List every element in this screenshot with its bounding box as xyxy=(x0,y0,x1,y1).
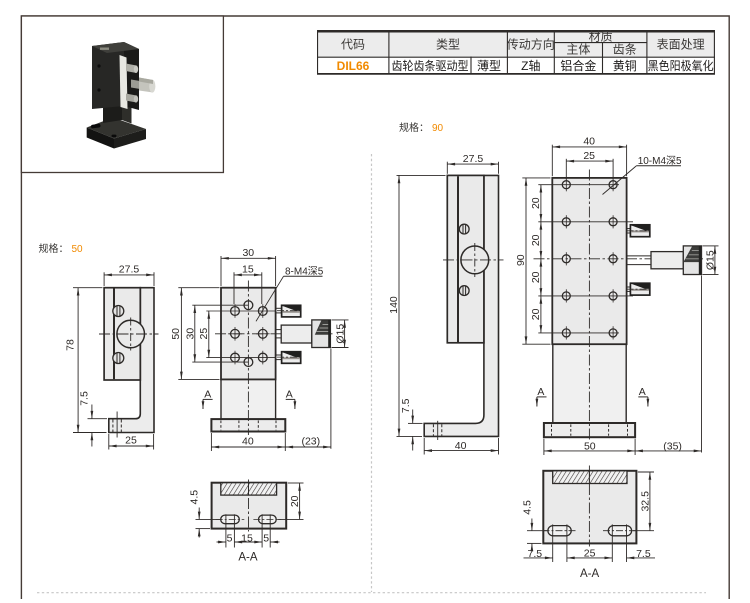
svg-text:25: 25 xyxy=(125,435,137,447)
svg-text:齿轮齿条驱动型: 齿轮齿条驱动型 xyxy=(392,59,469,73)
svg-text:5: 5 xyxy=(263,532,269,544)
svg-text:20: 20 xyxy=(289,495,301,507)
svg-text:A-A: A-A xyxy=(238,552,258,564)
svg-text:A: A xyxy=(639,386,646,398)
svg-text:材质: 材质 xyxy=(589,30,613,44)
svg-text:黄铜: 黄铜 xyxy=(613,58,637,73)
svg-text:Ø15: Ø15 xyxy=(334,324,346,344)
svg-text:4.5: 4.5 xyxy=(521,500,533,515)
svg-text:10-M4深5: 10-M4深5 xyxy=(638,155,682,167)
svg-text:类型: 类型 xyxy=(436,38,460,52)
svg-text:7.5: 7.5 xyxy=(79,391,91,406)
svg-text:90: 90 xyxy=(515,254,527,266)
svg-text:代码: 代码 xyxy=(341,38,365,52)
svg-text:25: 25 xyxy=(584,548,596,560)
svg-text:(35): (35) xyxy=(663,440,682,452)
svg-text:20: 20 xyxy=(530,271,542,283)
svg-text:5: 5 xyxy=(227,532,233,544)
svg-text:40: 40 xyxy=(583,136,595,148)
svg-text:薄型: 薄型 xyxy=(477,58,501,73)
svg-text:78: 78 xyxy=(64,339,76,351)
svg-text:7.5: 7.5 xyxy=(400,398,412,413)
svg-text:A: A xyxy=(286,389,293,401)
svg-text:40: 40 xyxy=(455,440,467,452)
svg-text:铝合金: 铝合金 xyxy=(560,58,596,73)
svg-text:30: 30 xyxy=(242,247,254,259)
svg-text:8-M4深5: 8-M4深5 xyxy=(285,266,324,278)
svg-text:27.5: 27.5 xyxy=(119,264,140,276)
svg-text:Z轴: Z轴 xyxy=(521,58,540,73)
svg-text:主体: 主体 xyxy=(566,43,590,57)
svg-text:齿条: 齿条 xyxy=(613,43,637,57)
svg-text:20: 20 xyxy=(530,234,542,246)
svg-text:27.5: 27.5 xyxy=(463,153,484,165)
svg-text:20: 20 xyxy=(530,308,542,320)
svg-text:7.5: 7.5 xyxy=(527,548,542,560)
svg-text:A-A: A-A xyxy=(580,568,600,580)
svg-text:25: 25 xyxy=(198,328,210,340)
svg-text:15: 15 xyxy=(241,532,253,544)
svg-text:140: 140 xyxy=(388,296,400,314)
svg-text:表面处理: 表面处理 xyxy=(657,38,705,52)
svg-text:4.5: 4.5 xyxy=(189,490,201,505)
svg-text:7.5: 7.5 xyxy=(636,548,651,560)
svg-text:40: 40 xyxy=(242,436,254,448)
svg-text:DIL66: DIL66 xyxy=(337,59,370,73)
svg-text:32.5: 32.5 xyxy=(639,491,651,512)
svg-text:A: A xyxy=(537,386,544,398)
svg-text:A: A xyxy=(204,389,211,401)
svg-text:15: 15 xyxy=(242,264,254,276)
svg-text:20: 20 xyxy=(530,197,542,209)
svg-text:50: 50 xyxy=(584,440,596,452)
svg-text:50: 50 xyxy=(170,328,182,340)
svg-text:Ø15: Ø15 xyxy=(705,250,717,270)
svg-text:25: 25 xyxy=(583,150,595,162)
svg-text:(23): (23) xyxy=(301,435,320,447)
svg-text:黑色阳极氧化: 黑色阳极氧化 xyxy=(648,59,714,73)
svg-text:30: 30 xyxy=(184,328,196,340)
svg-text:传动方向: 传动方向 xyxy=(507,37,555,52)
